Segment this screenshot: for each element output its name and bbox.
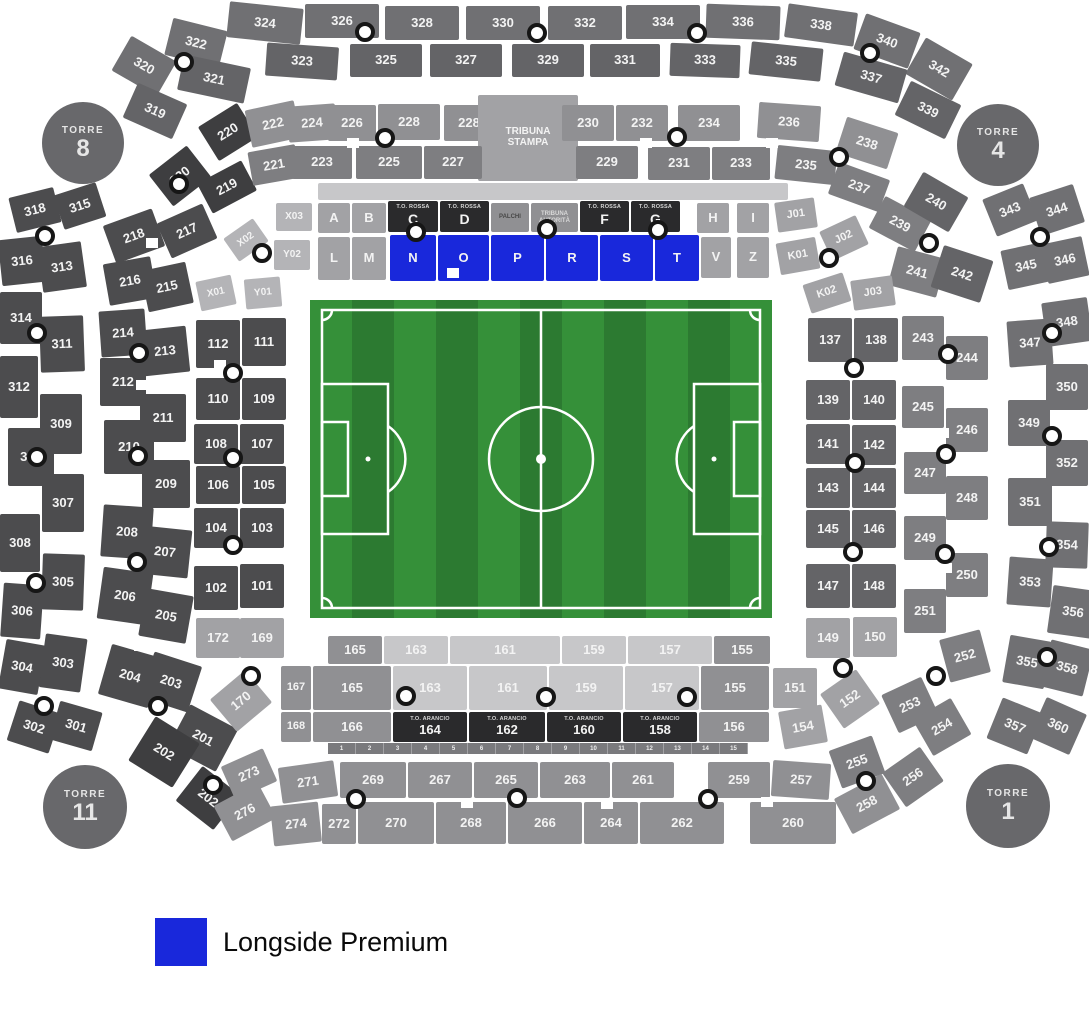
gate-marker-icon [537,219,557,239]
section-160[interactable]: T.O. ARANCIO160 [547,712,621,742]
row-number: 11 [608,743,636,754]
section-301[interactable]: 301 [49,701,102,752]
section-217[interactable]: 217 [156,203,217,258]
section-207[interactable]: 207 [138,526,193,579]
section-label: 159 [575,681,597,695]
section-335[interactable]: 335 [748,41,823,81]
section-label: 208 [116,524,139,540]
gate-notch [347,138,359,148]
section-label: D [459,212,469,227]
section-265[interactable]: 265 [474,762,538,798]
section-label: 224 [301,115,324,131]
section-label: 101 [251,579,273,593]
section-label: 206 [113,588,136,605]
section-label: B [364,211,373,225]
section-138[interactable]: 138 [854,318,898,362]
section-268[interactable]: 268 [436,802,506,844]
row-number: 12 [636,743,664,754]
section-236[interactable]: 236 [757,102,821,142]
section-label: 143 [817,481,839,495]
section-label: 355 [1015,653,1039,671]
section-218[interactable]: 218 [103,208,166,263]
gate-marker-icon [223,535,243,555]
section-label: H [708,211,717,225]
section-149[interactable]: 149 [806,618,850,658]
section-label: 111 [254,335,274,349]
section-252[interactable]: 252 [939,629,991,682]
section-233[interactable]: 233 [712,147,770,180]
section-139[interactable]: 139 [806,380,850,420]
section-a[interactable]: A [318,203,350,233]
section-label: 228 [398,115,420,129]
section-k01[interactable]: K01 [776,237,821,275]
tower-number: 8 [76,136,89,161]
section-137[interactable]: 137 [808,318,852,362]
section-209[interactable]: 209 [142,460,190,508]
section-label: X01 [206,286,226,300]
section-label: 202 [151,740,177,763]
section-label: 358 [1055,659,1079,678]
section-label: 272 [328,817,350,831]
section-k02[interactable]: K02 [802,272,851,314]
row-number: 15 [720,743,748,754]
section-label: 106 [207,478,229,492]
section-267[interactable]: 267 [408,762,472,798]
section-label: 314 [10,311,32,325]
gate-marker-icon [169,174,189,194]
gate-marker-icon [174,52,194,72]
section-m[interactable]: M [352,237,386,280]
section-234[interactable]: 234 [678,105,740,141]
section-label: 259 [728,773,750,787]
section-156[interactable]: 156 [699,712,769,742]
gate-marker-icon [844,358,864,378]
gate-notch [761,797,773,807]
section-label: 342 [926,57,952,80]
section-label: 311 [51,337,72,352]
gate-marker-icon [860,43,880,63]
section-label: 150 [864,630,886,644]
section-j03[interactable]: J03 [850,275,896,311]
section-105[interactable]: 105 [242,466,286,504]
gate-marker-icon [819,248,839,268]
section-336[interactable]: 336 [705,4,780,41]
section-label: 220 [215,120,241,143]
section-331[interactable]: 331 [590,44,660,77]
section-label: 346 [1053,251,1077,269]
section-label: 329 [537,53,559,67]
section-102[interactable]: 102 [194,566,238,610]
section-label: 308 [9,536,31,550]
section-352[interactable]: 352 [1046,440,1088,486]
legend-swatch [155,918,207,966]
section-219[interactable]: 219 [197,160,257,213]
section-label: 330 [492,16,514,30]
section-label: 164 [419,723,441,737]
section-329[interactable]: 329 [512,44,584,77]
tower-number: 4 [991,138,1004,163]
section-p[interactable]: P [491,235,544,281]
gate-notch [766,138,778,148]
section-350[interactable]: 350 [1046,364,1088,410]
section-label: 307 [52,496,74,510]
section-label: 156 [723,720,745,734]
row-number: 8 [524,743,552,754]
section-143[interactable]: 143 [806,468,850,508]
section-161[interactable]: 161 [469,666,547,710]
section-261[interactable]: 261 [612,762,674,798]
section-label: 357 [1002,715,1027,736]
section-x01[interactable]: X01 [195,275,236,312]
section-label: 109 [253,392,275,406]
section-label: J01 [786,208,806,222]
section-label: 302 [22,717,47,737]
section-label: TRIBUNA STAMPA [506,127,551,149]
section-label: 248 [956,491,978,505]
row-number: 1 [328,743,356,754]
section-label: Y02 [283,250,301,261]
section-145[interactable]: 145 [806,510,850,548]
section-label: 323 [291,54,314,70]
section-150[interactable]: 150 [853,617,897,657]
gate-marker-icon [148,696,168,716]
section-label: 336 [732,15,754,30]
section-311[interactable]: 311 [39,315,85,373]
section-323[interactable]: 323 [265,43,339,81]
section-label: 256 [900,765,926,789]
section-106[interactable]: 106 [196,466,240,504]
section-label: R [567,251,576,265]
section-231[interactable]: 231 [648,147,710,180]
legend-label: Longside Premium [223,927,448,958]
section-308[interactable]: 308 [0,514,40,572]
section-label: 154 [791,718,815,736]
section-172[interactable]: 172 [196,618,240,658]
gate-marker-icon [843,542,863,562]
section-251[interactable]: 251 [904,589,946,633]
section-label: 315 [68,196,93,216]
section-label: 104 [205,521,227,535]
section-label: 239 [887,213,913,236]
row-number: 14 [692,743,720,754]
section-328[interactable]: 328 [385,6,459,40]
section-label: 207 [153,544,176,560]
section-s[interactable]: S [600,235,653,281]
section-v[interactable]: V [701,237,731,278]
section-205[interactable]: 205 [138,588,194,644]
section-label: 241 [905,262,930,281]
gate-notch [146,238,158,248]
section-109[interactable]: 109 [242,378,286,420]
section-label: 269 [362,773,384,787]
section-label: 262 [671,816,693,830]
section-168[interactable]: 168 [281,712,311,742]
section-158[interactable]: T.O. ARANCIO158 [623,712,697,742]
section-305[interactable]: 305 [41,553,85,610]
section-label: 159 [583,643,605,657]
section-label: Z [749,250,757,264]
section-164[interactable]: T.O. ARANCIO164 [393,712,467,742]
gate-marker-icon [829,147,849,167]
section-338[interactable]: 338 [784,3,858,46]
section-label: 326 [331,14,353,28]
gate-marker-icon [375,128,395,148]
section-147[interactable]: 147 [806,564,850,608]
section-palchi[interactable]: PALCHI [491,203,529,232]
section-label: 213 [153,343,176,359]
section-230[interactable]: 230 [562,105,614,141]
section-label: 352 [1056,456,1078,470]
section-144[interactable]: 144 [852,468,896,508]
section-103[interactable]: 103 [240,508,284,548]
section-167[interactable]: 167 [281,666,311,710]
section-label: 205 [154,607,178,625]
section-229[interactable]: 229 [576,146,638,179]
section-label: 112 [208,337,229,351]
section-315[interactable]: 315 [54,182,107,230]
section-157[interactable]: 157 [628,636,712,664]
section-label: 347 [1019,335,1042,351]
section-label: 219 [214,176,240,199]
gate-marker-icon [698,789,718,809]
row-number: 3 [384,743,412,754]
section-274[interactable]: 274 [270,802,322,847]
section-label: 322 [184,34,208,53]
section-label: 267 [429,773,451,787]
section-332[interactable]: 332 [548,6,622,40]
section-label: 338 [809,17,832,34]
section-260[interactable]: 260 [750,802,836,844]
section-351[interactable]: 351 [1008,478,1052,526]
section-label: 163 [419,681,441,695]
section-label: 216 [118,272,142,290]
gate-marker-icon [833,658,853,678]
section-label: 325 [375,53,397,67]
section-215[interactable]: 215 [140,262,194,313]
section-226[interactable]: 226 [328,105,376,141]
section-272[interactable]: 272 [322,804,356,844]
section-343[interactable]: 343 [982,183,1038,237]
gate-marker-icon [241,666,261,686]
section-label: 204 [118,666,143,685]
section-label: 321 [202,70,226,88]
section-label: 110 [208,392,229,406]
section-324[interactable]: 324 [226,1,303,45]
section-label: 257 [790,772,813,788]
section-r[interactable]: R [546,235,598,281]
section-313[interactable]: 313 [37,241,87,293]
row-number: 5 [440,743,468,754]
section-label: 149 [817,631,839,645]
section-d[interactable]: T.O. ROSSAD [440,201,489,232]
section-label: 138 [865,333,887,347]
section-165[interactable]: 165 [328,636,382,664]
section-label: 166 [341,720,363,734]
section-146[interactable]: 146 [852,510,896,548]
section-label: X03 [285,212,303,223]
section-label: 169 [251,631,273,645]
torre-8: TORRE8 [42,102,124,184]
section-label: 334 [652,15,674,29]
section-165[interactable]: 165 [313,666,391,710]
gate-notch [640,138,652,148]
section-label: 266 [534,816,556,830]
section-152[interactable]: 152 [820,669,880,729]
section-y01[interactable]: Y01 [244,276,282,309]
gate-notch [937,428,949,438]
section-label: 350 [1056,380,1078,394]
gate-marker-icon [935,544,955,564]
gate-marker-icon [527,23,547,43]
gate-marker-icon [687,23,707,43]
section-label: 103 [251,521,273,535]
section-312[interactable]: 312 [0,356,38,418]
section-label: 253 [897,694,923,716]
section-x03[interactable]: X03 [276,203,312,231]
section-159[interactable]: 159 [562,636,626,664]
section-161[interactable]: 161 [450,636,560,664]
gate-notch [136,380,148,390]
section-label: 316 [10,253,33,269]
section-label: 158 [649,723,671,737]
section-169[interactable]: 169 [240,618,284,658]
section-label: 251 [914,604,936,618]
section-label: 105 [253,478,275,492]
gate-marker-icon [648,220,668,240]
section-141[interactable]: 141 [806,424,850,464]
row-number-strip: 123456789101112131415 [328,743,748,754]
gate-marker-icon [355,22,375,42]
section-t[interactable]: T [655,235,699,281]
section-257[interactable]: 257 [771,760,831,800]
section-label: 107 [251,437,273,451]
section-227[interactable]: 227 [424,146,482,179]
section-label: 273 [236,763,262,785]
section-232[interactable]: 232 [616,105,668,141]
section-label: 222 [261,115,285,133]
section-label: 151 [784,681,806,695]
section-163[interactable]: 163 [384,636,448,664]
section-333[interactable]: 333 [669,43,740,78]
section-148[interactable]: 148 [852,564,896,608]
section-label: 226 [341,116,363,130]
section-o[interactable]: O [438,235,489,281]
row-number: 6 [468,743,496,754]
section-label: 245 [912,400,934,414]
section-h[interactable]: H [697,203,729,233]
section-f[interactable]: T.O. ROSSAF [580,201,629,232]
section-label: 155 [724,681,746,695]
section-label: 230 [577,116,599,130]
gate-marker-icon [1039,537,1059,557]
section-154[interactable]: 154 [778,704,828,749]
section-n[interactable]: N [390,235,436,281]
section-label: 343 [997,199,1022,220]
section-j01[interactable]: J01 [774,197,818,232]
section-i[interactable]: I [737,203,769,233]
section-label: 146 [863,522,885,536]
section-245[interactable]: 245 [902,386,944,428]
gate-marker-icon [346,789,366,809]
gate-marker-icon [1042,426,1062,446]
row-number: 2 [356,743,384,754]
section-label: 108 [205,437,227,451]
section-label: 170 [228,689,254,714]
section-223[interactable]: 223 [292,146,352,179]
section-327[interactable]: 327 [430,44,502,77]
section-y02[interactable]: Y02 [274,240,310,270]
section-307[interactable]: 307 [42,474,84,532]
section-label: 271 [296,774,319,791]
section-162[interactable]: T.O. ARANCIO162 [469,712,545,742]
section-label: 139 [817,393,839,407]
section-label: 244 [956,351,978,365]
section-242[interactable]: 242 [930,245,993,303]
gate-marker-icon [223,448,243,468]
section-110[interactable]: 110 [196,378,240,420]
section-label: 331 [614,53,636,67]
gate-marker-icon [667,127,687,147]
section-159[interactable]: 159 [549,666,623,710]
torre-1: TORRE1 [966,764,1050,848]
section-248[interactable]: 248 [946,476,988,520]
section-263[interactable]: 263 [540,762,610,798]
section-270[interactable]: 270 [358,802,434,844]
section-356[interactable]: 356 [1047,585,1089,639]
section-label: V [712,250,721,264]
section-label: O [458,251,468,265]
section-303[interactable]: 303 [38,633,87,692]
section-label: 268 [460,816,482,830]
gate-marker-icon [127,552,147,572]
section-151[interactable]: 151 [773,668,817,708]
section-label: 303 [51,655,74,672]
section-101[interactable]: 101 [240,564,284,608]
stadium-map: 123456789101112131415 Longside Premium 3… [0,0,1089,1032]
gate-marker-icon [35,226,55,246]
section-235[interactable]: 235 [774,145,837,185]
section-label: 161 [497,681,519,695]
section-label: 247 [914,466,936,480]
section-318[interactable]: 318 [8,187,61,233]
section-label: 252 [953,646,978,665]
section-266[interactable]: 266 [508,802,582,844]
section-107[interactable]: 107 [240,424,284,464]
section-225[interactable]: 225 [356,146,422,179]
torre-11: TORRE11 [43,765,127,849]
section-271[interactable]: 271 [278,760,338,803]
section-label: 218 [121,226,146,247]
section-166[interactable]: 166 [313,712,391,742]
section-360[interactable]: 360 [1029,697,1087,755]
section-l[interactable]: L [318,237,350,280]
section-z[interactable]: Z [737,237,769,278]
section-b[interactable]: B [352,203,386,233]
section-259[interactable]: 259 [708,762,770,798]
section-319[interactable]: 319 [123,83,188,140]
section-155[interactable]: 155 [714,636,770,664]
section-label: 318 [23,201,47,220]
section-111[interactable]: 111 [242,318,286,366]
section-label: 265 [495,773,517,787]
section-label: 337 [859,68,884,87]
soccer-pitch [310,300,772,618]
section-155[interactable]: 155 [701,666,769,710]
section-325[interactable]: 325 [350,44,422,77]
section-label: 235 [794,157,817,173]
section-140[interactable]: 140 [852,380,896,420]
section-label: 328 [411,16,433,30]
